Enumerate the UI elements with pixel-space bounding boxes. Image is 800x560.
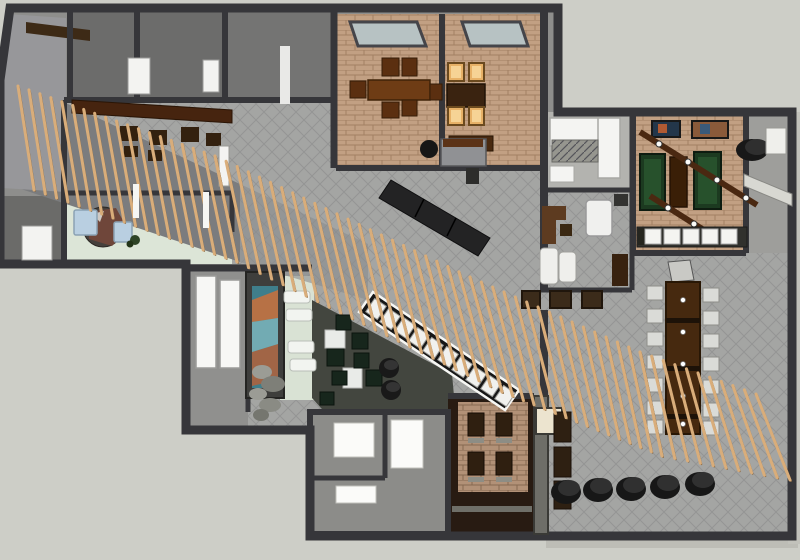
beam-light-6 [691,221,697,227]
communal-chair-l1 [647,286,663,300]
beam-light-1 [656,141,662,147]
lounge-stool-4 [354,353,369,368]
bench-cushion-2 [664,229,680,244]
pouf-cylinder-5-top [692,472,714,488]
restroom-fixture-2 [391,420,423,468]
floorplan-svg [0,0,800,560]
booth-seat-2 [496,438,512,443]
floorplan-render [0,0,800,560]
office-desk-1 [542,206,566,220]
chair-a-1 [382,58,399,76]
stove-hood [420,140,438,158]
beam-light-4 [743,195,749,201]
rock-2 [261,376,285,392]
communal-chair-r2 [703,311,719,325]
glow-chair-4-inner [472,110,481,122]
office-sofa-2 [559,252,576,282]
bench-cushion-5 [721,229,737,244]
booth-seat-4 [496,477,512,482]
kitchen-counter-3 [550,166,574,182]
office-chair [560,224,572,236]
glow-chair-1-inner [451,66,461,78]
lounge-stool-5 [332,371,347,385]
station-shelf [443,139,483,147]
communal-crossbar-1 [666,318,700,323]
glow-chair-2-inner [472,66,481,78]
lounge-stool-6 [366,370,382,386]
rock-3 [249,388,267,400]
bar-stool-4 [206,133,221,146]
communal-chair-r4 [703,357,719,371]
stool-row-2 [550,291,571,308]
booth-table-3 [468,452,484,475]
communal-chair-r3 [703,334,719,348]
booth-table-1 [468,413,484,436]
table-candle-5 [681,422,686,427]
dining-table-b [447,84,485,107]
booth-table-4 [496,452,512,475]
bench-seat-4 [290,359,316,371]
lounge-stool-7 [320,392,334,405]
lounge-stool-2 [352,333,368,349]
framed-picture-1-inner [658,124,667,133]
beam-light-2 [685,159,691,165]
stool-row-3 [582,291,602,308]
lit-post-2 [203,192,209,228]
lounge-stool-3 [327,349,344,366]
office-desk-2 [542,220,556,244]
stool-row-1 [522,291,540,308]
lit-wall-panel [280,46,290,104]
booth-seat-1 [468,438,484,443]
pouf-cylinder-1-top [558,480,580,496]
left-room-door [22,226,52,260]
lounge-table-1 [325,330,345,348]
communal-table [666,282,700,434]
framed-picture-2-inner [700,124,710,134]
table-candle-2 [681,330,686,335]
station-side-table [466,168,479,184]
beam-light-5 [665,205,671,211]
bench-cushion-1 [645,229,661,244]
chair-a-3 [382,102,399,118]
office-cabinet [612,254,628,286]
chair-a-4 [402,100,417,116]
pouf-cylinder-4-top [657,475,679,491]
bar-stool-3 [181,127,199,142]
booth-seat-3 [468,477,484,482]
shuffleboard-table [670,157,687,207]
restroom-fixture-3 [336,486,376,503]
rock-5 [253,409,269,421]
booth-table-2 [496,413,512,436]
black-cylinder-face [745,139,769,155]
restroom-block-floor [310,412,448,534]
skylight-dining-b [462,22,528,46]
espresso-step [452,506,532,512]
office-corner-unit [614,194,628,206]
corridor-door-2 [220,280,240,368]
bench-cushion-3 [683,229,699,244]
beam-light-3 [714,177,720,183]
dining-table-a [368,80,430,100]
pouf-cylinder-2-top [590,478,612,494]
bench-seat-2 [286,309,312,321]
restroom-fixture-1 [334,423,374,457]
chair-a-5 [350,81,366,98]
backhouse-door-2 [203,60,219,92]
side-table-2 [554,447,571,477]
lit-post-1 [133,184,139,218]
lounge-pouf-2-top [386,382,400,392]
table-candle-3 [681,362,686,367]
corridor-door-1 [196,276,216,368]
vestibule-pillar [766,128,786,154]
kitchen-counter-2 [598,118,620,178]
office-sofa-1 [540,248,558,284]
skylight-dining-a [350,22,426,46]
communal-chair-l3 [647,332,663,346]
communal-crossbar-3 [666,414,700,419]
chair-a-2 [402,58,417,76]
lobby-plant-2 [127,241,134,248]
backhouse-door-1 [128,58,150,94]
side-table-1 [554,412,571,442]
lobby-seat-2 [114,222,132,242]
lounge-stool-1 [336,315,351,330]
lobby-seat-1 [74,210,97,235]
bench-seat-3 [288,341,314,353]
exterior-wall-face-left [2,14,66,192]
glow-chair-3-inner [451,110,461,122]
lounge-pouf-1-top [384,360,398,370]
communal-chair-r1 [703,288,719,302]
bench-cushion-4 [702,229,718,244]
room-backhouse-3-floor [225,12,334,100]
office-table [586,200,612,236]
table-candle-1 [681,298,686,303]
kitchen-counter-hatched [552,140,598,162]
room-backhouse-1-floor [70,12,137,100]
podium [668,260,694,282]
communal-chair-l2 [647,309,663,323]
chair-a-6 [430,84,442,100]
pouf-cylinder-3-top [623,477,645,493]
